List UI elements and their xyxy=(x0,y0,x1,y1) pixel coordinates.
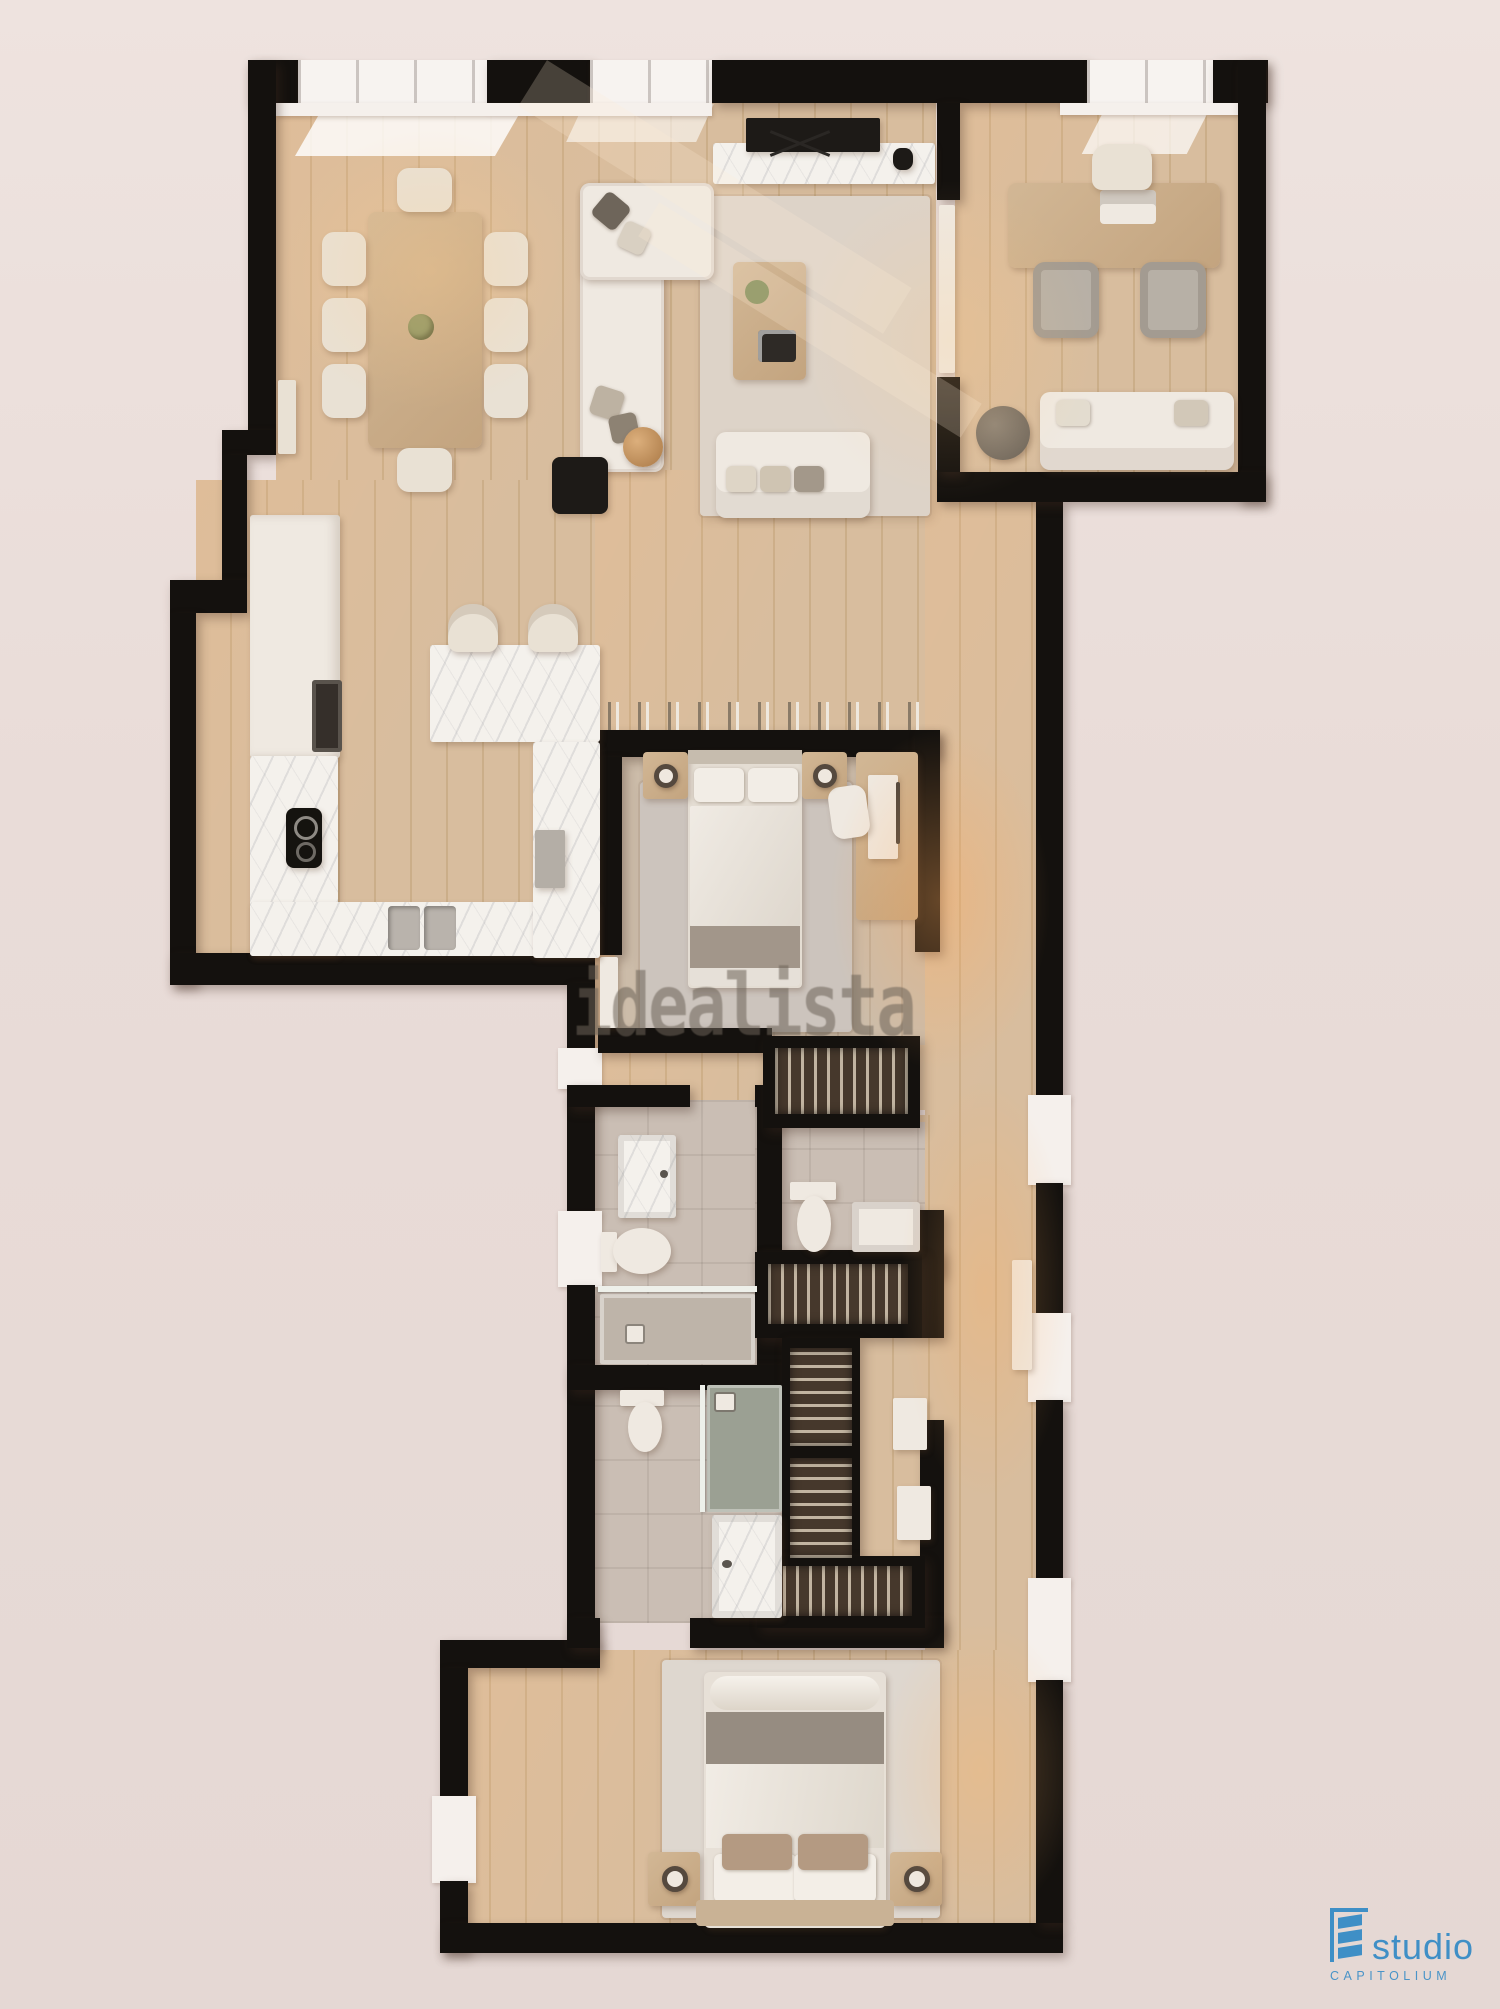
logo-subname: CAPITOLIUM xyxy=(1330,1969,1480,1983)
floorplan: idealista studio CAPITOLIUM xyxy=(0,0,1500,2009)
dining-chair xyxy=(322,298,366,352)
desk-panel xyxy=(868,775,898,859)
window-sill-office xyxy=(1060,103,1240,115)
closet-clothes xyxy=(770,1566,912,1616)
window-right-2 xyxy=(1028,1313,1071,1402)
desk-lamp xyxy=(896,782,900,844)
wall-top-2 xyxy=(487,60,590,103)
sofa-pillow xyxy=(794,466,824,492)
wall-office-bottom xyxy=(937,472,1266,502)
logo-name: studio xyxy=(1372,1932,1474,1962)
logo-bar xyxy=(1338,1914,1362,1929)
wall-jog-1 xyxy=(222,430,276,455)
dishwasher xyxy=(535,830,565,888)
sofa-pillow xyxy=(1174,400,1208,426)
wall-art xyxy=(278,380,296,454)
wall-kitchen-bottom xyxy=(170,953,595,985)
dining-chair xyxy=(484,232,528,286)
laptop xyxy=(1100,190,1156,224)
wall-right-2 xyxy=(1036,1183,1063,1315)
burner xyxy=(296,842,316,862)
wall-master-left-1 xyxy=(440,1668,468,1798)
closet-clothes xyxy=(790,1458,852,1558)
bar-stool xyxy=(528,604,578,652)
bed-pillow xyxy=(748,768,798,802)
office-round-table xyxy=(976,406,1030,460)
entrance-door xyxy=(1012,1260,1032,1370)
dining-chair xyxy=(484,364,528,418)
shower-glass xyxy=(598,1286,757,1292)
wall-lower-left-3 xyxy=(567,1285,595,1645)
table-lamp xyxy=(813,764,837,788)
wall-corridor-1 xyxy=(920,1210,944,1338)
burner xyxy=(294,816,318,840)
office-visitor-chair xyxy=(1033,262,1099,338)
bed-pillow xyxy=(722,1834,792,1870)
estudio-capitolium-logo: studio CAPITOLIUM xyxy=(1330,1908,1480,1983)
linen-shelf xyxy=(897,1486,931,1540)
bath1-tap xyxy=(660,1170,668,1178)
speaker xyxy=(893,148,913,170)
dining-chair xyxy=(322,364,366,418)
wall-right-4 xyxy=(1036,1680,1063,1923)
bath1-toilet xyxy=(613,1228,671,1274)
dining-centerpiece xyxy=(408,314,434,340)
wall-bath-central xyxy=(757,1085,782,1390)
black-side-table xyxy=(552,457,608,514)
bed-duvet xyxy=(690,806,800,926)
window-right-1 xyxy=(1028,1095,1071,1185)
logo-bar xyxy=(1338,1944,1362,1959)
wardrobe-clothes xyxy=(768,1264,908,1324)
table-lamp xyxy=(904,1866,930,1892)
bed-pillow xyxy=(798,1834,868,1870)
window-master-left xyxy=(432,1796,476,1883)
bed-foot-roll xyxy=(710,1676,880,1710)
kitchen-sink xyxy=(388,906,420,950)
wc-toilet xyxy=(797,1196,831,1252)
wall-office-right xyxy=(1238,60,1266,502)
dining-chair xyxy=(397,168,452,212)
logo-icon xyxy=(1330,1908,1368,1962)
bath2-toilet xyxy=(628,1402,662,1452)
window-sill-top-left xyxy=(276,103,712,116)
bath2-tap xyxy=(722,1560,732,1568)
coffee-table xyxy=(733,262,806,380)
table-lamp xyxy=(662,1866,688,1892)
window-left-2 xyxy=(558,1211,602,1287)
dining-chair xyxy=(397,448,452,492)
office-desk-chair xyxy=(1092,144,1152,190)
wall-right-3 xyxy=(1036,1400,1063,1580)
office-window xyxy=(1087,60,1213,103)
wall-bedroom1-right xyxy=(915,730,940,952)
linen-shelf xyxy=(893,1398,927,1450)
shower-drain xyxy=(625,1324,645,1344)
floorplan-screenshot: { "watermark": { "text": "idealista" }, … xyxy=(0,0,1500,2009)
wc-washbasin xyxy=(852,1202,920,1252)
bar-stool xyxy=(448,604,498,652)
wall-zone-bottom-1 xyxy=(567,1618,600,1648)
dining-chair xyxy=(322,232,366,286)
wall-office-partition-2 xyxy=(937,377,960,472)
bed-headboard xyxy=(696,1900,894,1926)
bed-gray-blanket xyxy=(706,1712,884,1764)
coffee-table-tray xyxy=(758,330,796,362)
bay-window-2 xyxy=(590,60,712,103)
bay-window-1 xyxy=(298,60,487,103)
sofa-pillow xyxy=(760,466,790,492)
sofa-pillow xyxy=(1056,400,1090,426)
dining-chair xyxy=(484,298,528,352)
bed-pillow xyxy=(694,768,744,802)
coffee-table-plant xyxy=(745,280,769,304)
wall-living-left xyxy=(248,60,276,432)
breakfast-bar xyxy=(430,645,600,742)
wall-right-1 xyxy=(1036,500,1063,1097)
wall-bath1-top-1 xyxy=(567,1085,690,1107)
wall-jog-2 xyxy=(170,580,247,613)
round-lamp-table xyxy=(623,427,663,467)
office-visitor-chair xyxy=(1140,262,1206,338)
wall-kitchen-left xyxy=(170,613,196,985)
sofa-pillow xyxy=(726,466,756,492)
office-door xyxy=(939,205,955,373)
bookshelf xyxy=(608,702,930,730)
bath1-shower-tray xyxy=(600,1294,755,1364)
shower-glass xyxy=(700,1385,705,1512)
wall-top-3 xyxy=(712,60,1087,103)
shower-head xyxy=(714,1392,736,1412)
wardrobe-clothes xyxy=(775,1048,908,1114)
window-right-3 xyxy=(1028,1578,1071,1682)
table-lamp xyxy=(654,764,678,788)
idealista-watermark: idealista xyxy=(572,956,914,1056)
closet-clothes xyxy=(790,1348,852,1446)
bedroom1-desk-chair xyxy=(827,784,872,841)
wall-office-partition-1 xyxy=(937,103,960,200)
wall-bedroom1-left xyxy=(598,757,622,955)
bed-headboard xyxy=(688,750,802,764)
kitchen-sink xyxy=(424,906,456,950)
bath1-vanity xyxy=(618,1135,676,1218)
wall-left-2 xyxy=(222,455,247,580)
logo-bar xyxy=(1338,1929,1362,1944)
oven xyxy=(312,680,342,752)
